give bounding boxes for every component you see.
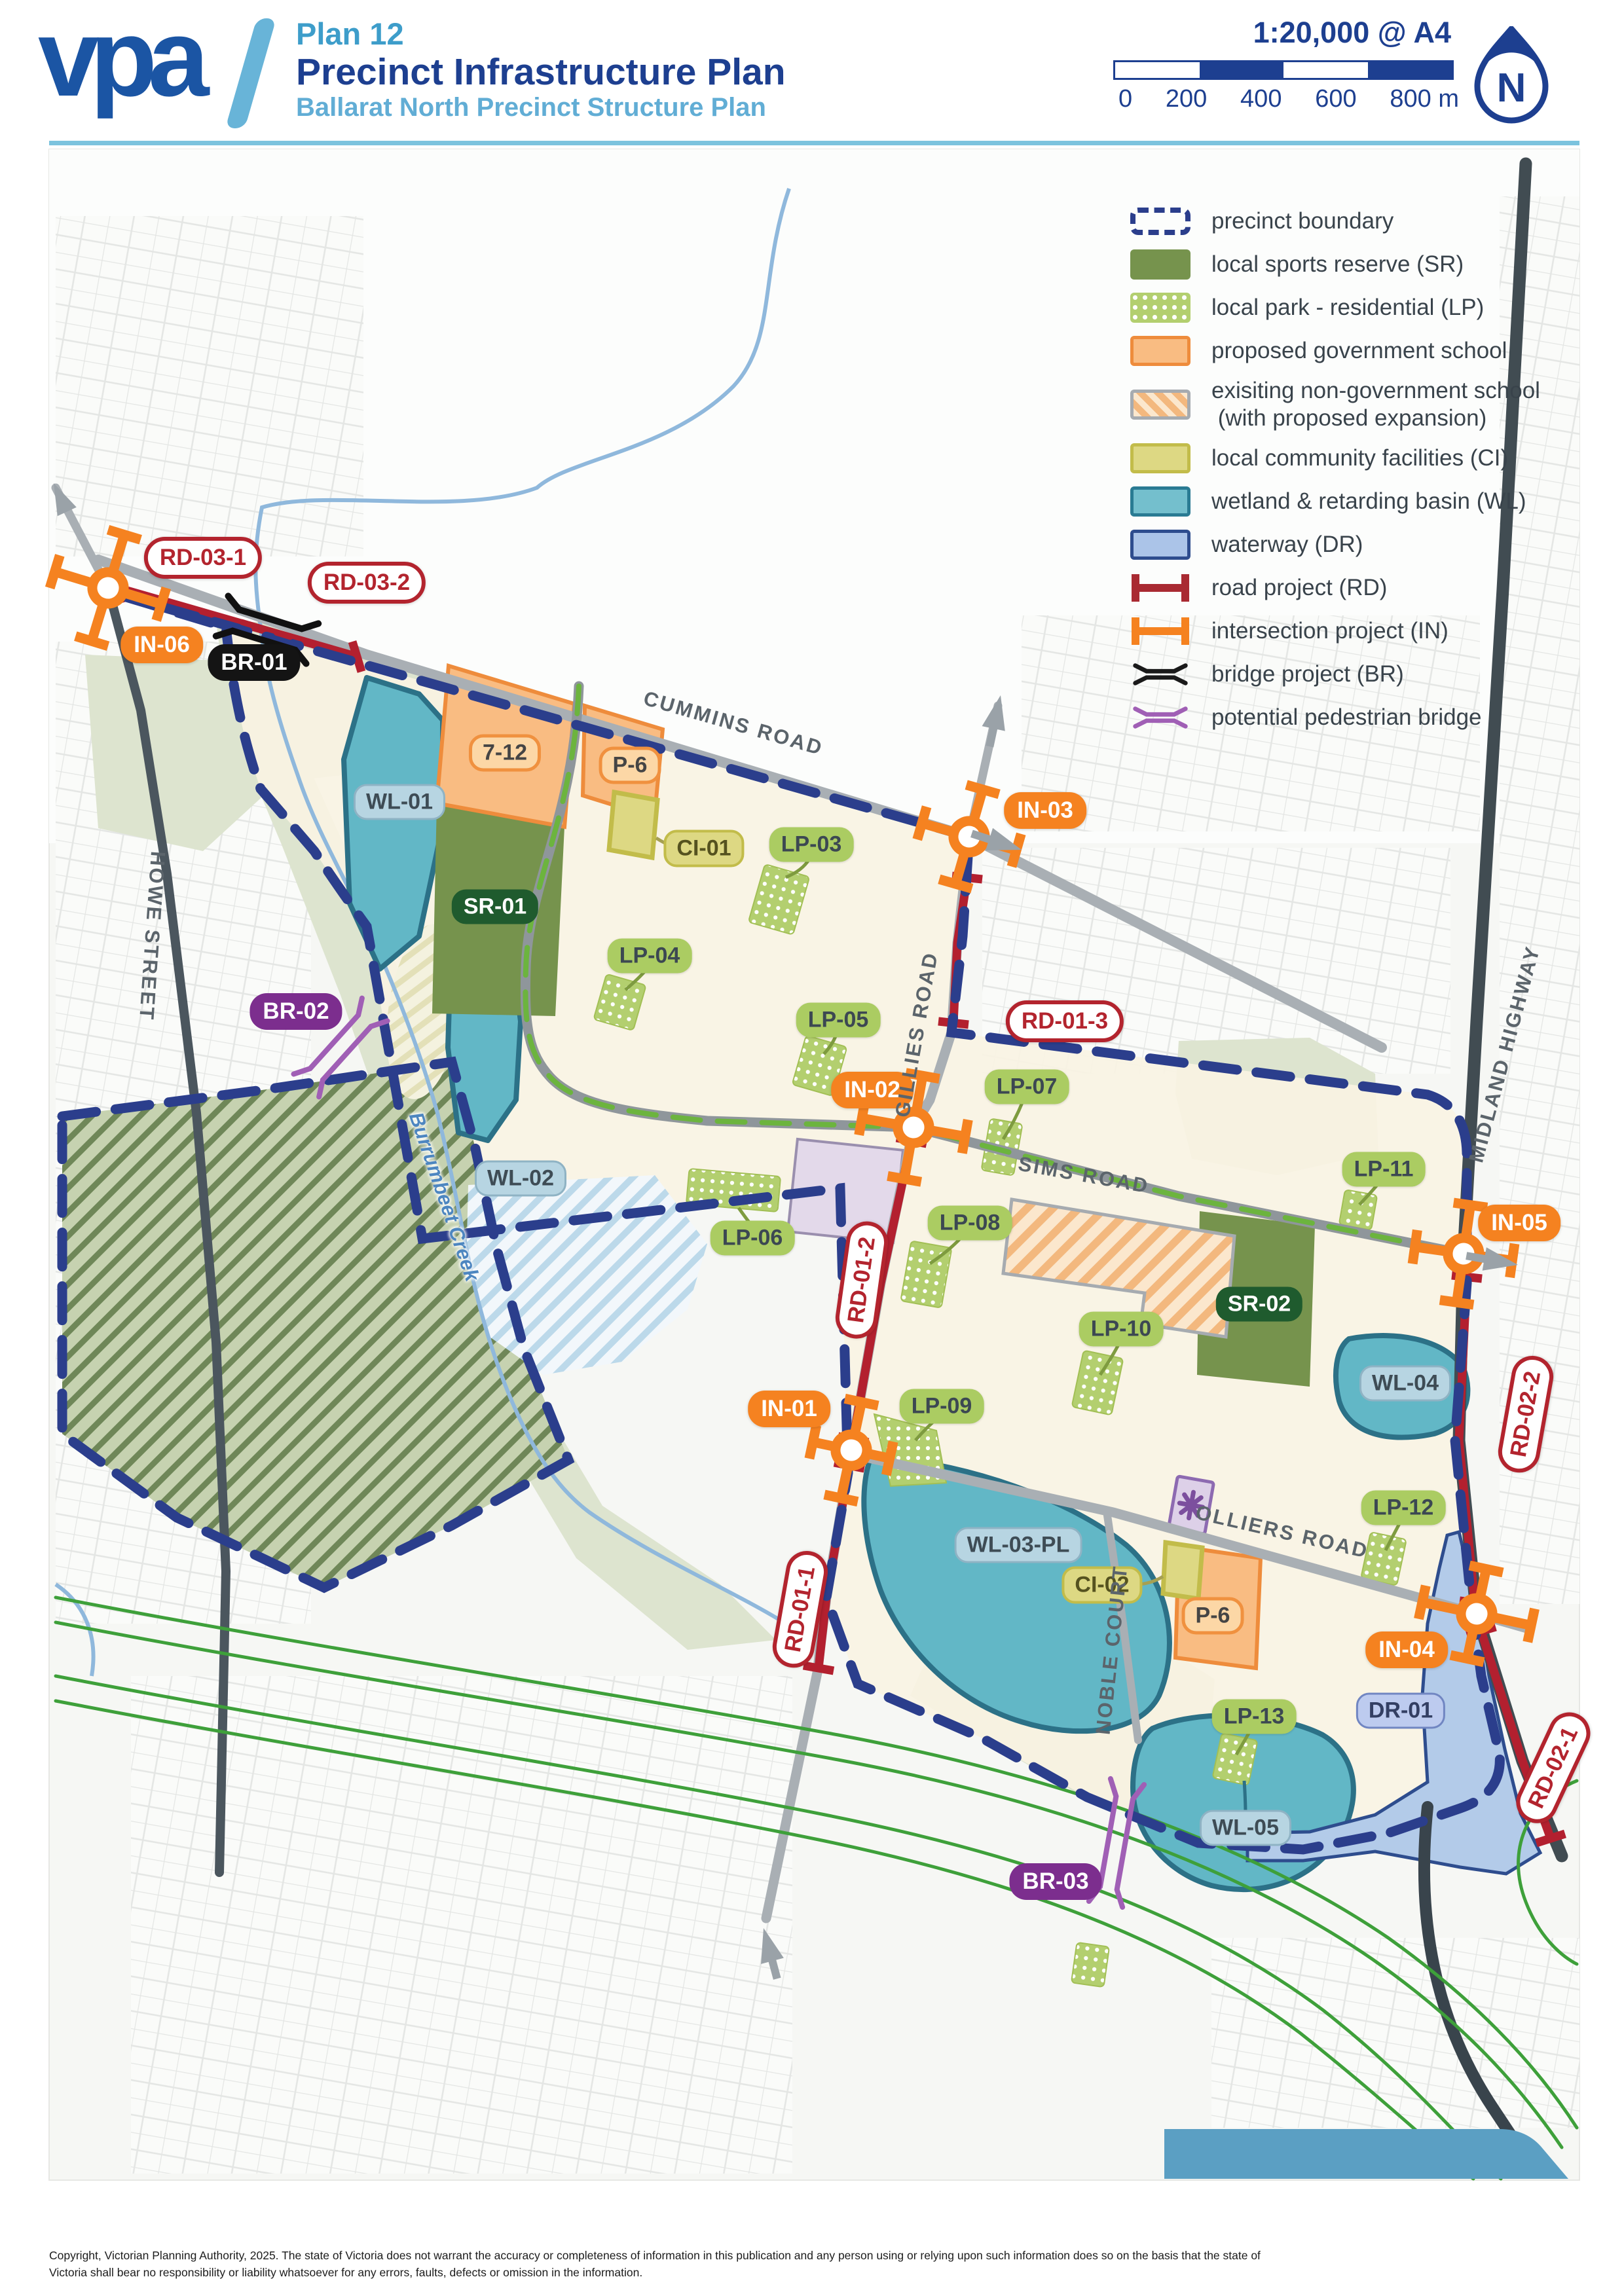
legend-label: local sports reserve (SR) — [1211, 251, 1464, 278]
scale-tick: 800 m — [1390, 85, 1459, 113]
legend-item-wetland: wetland & retarding basin (WL) — [1130, 484, 1576, 519]
copyright-text: Copyright, Victorian Planning Authority,… — [49, 2247, 1293, 2282]
legend-item-precinct-boundary: precinct boundary — [1130, 204, 1576, 238]
scale-bar — [1113, 60, 1454, 80]
legend-label: exisiting non-government school (with pr… — [1211, 377, 1540, 432]
legend-label: intersection project (IN) — [1211, 617, 1449, 645]
legend-swatch-lp-icon — [1130, 293, 1190, 323]
legend-swatch-br-icon — [1130, 659, 1190, 689]
scale-ticks: 0200400600800 m — [1113, 85, 1454, 113]
legend-item-local-park: local park - residential (LP) — [1130, 291, 1576, 325]
community-ci-01 — [609, 792, 657, 858]
scale-block: 1:20,000 @ A4 0200400600800 m — [1113, 16, 1454, 113]
legend-label: waterway (DR) — [1211, 531, 1363, 558]
community-ci-02 — [1163, 1542, 1202, 1599]
sports-reserve-sr-01 — [432, 803, 564, 1016]
legend-item-gov-school: proposed government school — [1130, 334, 1576, 368]
legend-swatch-rd-icon — [1130, 573, 1190, 603]
legend-swatch-boundary-icon — [1130, 208, 1190, 235]
header: vpa Plan 12 Precinct Infrastructure Plan… — [0, 0, 1624, 145]
header-divider — [49, 141, 1579, 145]
scale-tick: 400 — [1240, 85, 1282, 113]
legend-swatch-school-icon — [1130, 336, 1190, 366]
legend-item-pedestrian-bridge: potential pedestrian bridge — [1130, 701, 1576, 735]
scale-label: 1:20,000 @ A4 — [1113, 16, 1454, 50]
page-subtitle: Ballarat North Precinct Structure Plan — [296, 93, 786, 122]
svg-text:N: N — [1497, 65, 1526, 111]
scale-tick: 200 — [1166, 85, 1207, 113]
legend-swatch-sr-icon — [1130, 249, 1190, 280]
scale-tick: 600 — [1315, 85, 1356, 113]
legend-swatch-wl-icon — [1130, 486, 1190, 517]
legend-item-road-project: road project (RD) — [1130, 571, 1576, 605]
page-title: Precinct Infrastructure Plan — [296, 52, 786, 94]
legend-label: bridge project (BR) — [1211, 661, 1404, 688]
legend-item-community-facilities: local community facilities (CI) — [1130, 441, 1576, 475]
wetland-wl-04 — [1336, 1336, 1467, 1438]
vpa-logo: vpa — [38, 5, 200, 110]
plan-number: Plan 12 — [296, 17, 786, 52]
legend-swatch-in-icon — [1130, 616, 1190, 646]
legend-item-bridge-project: bridge project (BR) — [1130, 657, 1576, 691]
logo-slash-icon — [225, 18, 276, 128]
footer-wave — [1164, 2129, 1568, 2179]
plan-page: vpa Plan 12 Precinct Infrastructure Plan… — [0, 0, 1624, 2296]
legend-label: road project (RD) — [1211, 574, 1387, 602]
legend-label: local park - residential (LP) — [1211, 294, 1484, 321]
legend-label: potential pedestrian bridge — [1211, 704, 1482, 731]
legend-label: precinct boundary — [1211, 208, 1393, 235]
legend-item-waterway: waterway (DR) — [1130, 528, 1576, 562]
title-block: Plan 12 Precinct Infrastructure Plan Bal… — [296, 17, 786, 122]
legend-swatch-ped-icon — [1130, 702, 1190, 733]
legend: precinct boundarylocal sports reserve (S… — [1130, 204, 1576, 744]
legend-label: wetland & retarding basin (WL) — [1211, 488, 1526, 515]
legend-label: proposed government school — [1211, 337, 1507, 365]
scale-tick: 0 — [1118, 85, 1132, 113]
legend-item-intersection-project: intersection project (IN) — [1130, 614, 1576, 648]
legend-swatch-schoolx-icon — [1130, 390, 1190, 420]
legend-item-sports-reserve: local sports reserve (SR) — [1130, 247, 1576, 282]
legend-item-nongov-school: exisiting non-government school (with pr… — [1130, 377, 1576, 432]
legend-swatch-ci-icon — [1130, 443, 1190, 473]
legend-label: local community facilities (CI) — [1211, 445, 1508, 472]
legend-swatch-dr-icon — [1130, 530, 1190, 560]
